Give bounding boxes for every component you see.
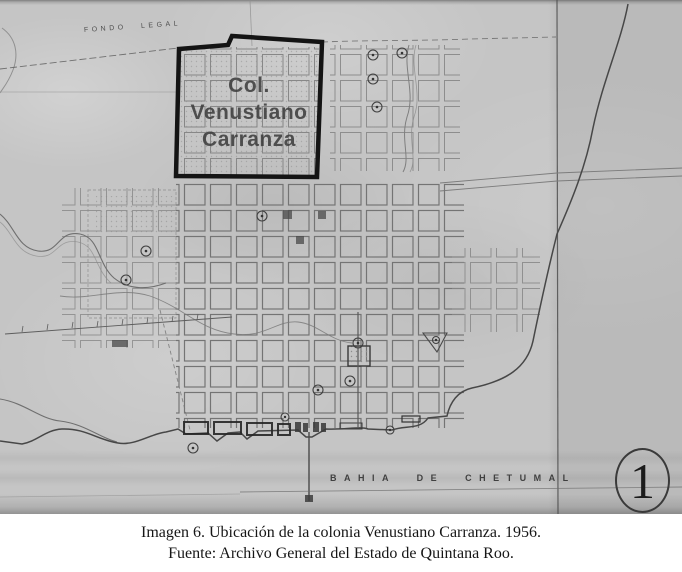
figure-imagen-6: FONDO LEGAL Col. Venustiano Carranza BAH… [0, 0, 682, 572]
sheet-curl-arc [0, 28, 16, 93]
bay-rule [0, 494, 240, 497]
west-stipple-blocks [96, 196, 174, 234]
colonia-label-line3: Carranza [176, 126, 322, 153]
east-road [440, 176, 682, 191]
north-limit-dashed-line [322, 37, 556, 42]
bay-label: BAHIA DE CHETUMAL [330, 473, 576, 483]
plaza-block [348, 346, 370, 366]
colonia-label-line1: Col. [176, 72, 322, 99]
colonia-label-line2: Venustiano [176, 99, 322, 126]
figure-caption: Imagen 6. Ubicación de la colonia Venust… [0, 514, 682, 572]
scanned-map-photo: FONDO LEGAL Col. Venustiano Carranza BAH… [0, 0, 682, 514]
colonia-label: Col. Venustiano Carranza [176, 72, 322, 153]
north-street-grid [330, 45, 460, 171]
pier-head [305, 495, 313, 502]
map-linework [0, 0, 682, 514]
river [0, 399, 117, 442]
caption-line2: Fuente: Archivo General del Estado de Qu… [0, 543, 682, 564]
sheet-number-badge: 1 [615, 448, 670, 513]
southeast-street-grid [452, 248, 540, 332]
fold-line [557, 0, 558, 514]
sheet-number: 1 [630, 452, 655, 510]
fondo-legal-line [0, 48, 178, 69]
caption-line1: Imagen 6. Ubicación de la colonia Venust… [0, 522, 682, 543]
